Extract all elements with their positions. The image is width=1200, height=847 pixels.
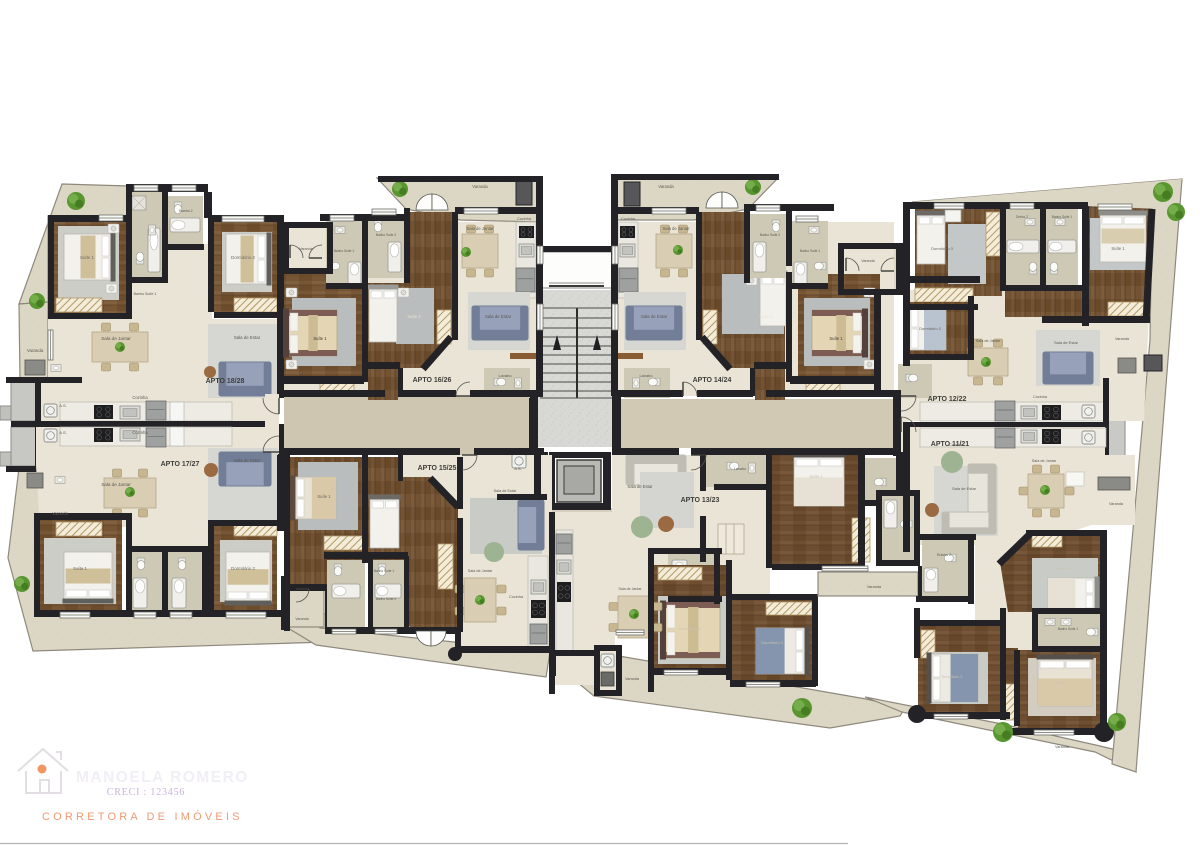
svg-text:APTO 15/25: APTO 15/25 [418,465,457,472]
svg-text:Varanda: Varanda [1109,502,1124,506]
svg-text:Sala de Jantar: Sala de Jantar [618,587,642,591]
svg-text:Zerbo 2: Zerbo 2 [1016,215,1028,219]
svg-text:Banho Suíte 2: Banho Suíte 2 [760,233,780,237]
svg-text:A.S.: A.S. [59,403,67,408]
svg-text:Sala de Jantar: Sala de Jantar [662,226,690,231]
svg-text:Banho 2: Banho 2 [179,209,192,213]
svg-text:Suíte 2: Suíte 2 [407,314,421,319]
svg-text:Varanda: Varanda [658,184,674,189]
svg-text:Varanda: Varanda [27,348,44,353]
svg-text:CORRETORA DE IMÓVEIS: CORRETORA DE IMÓVEIS [42,810,243,823]
svg-text:Suíte 1: Suíte 1 [1111,246,1125,251]
svg-text:Banho Suíte 1: Banho Suíte 1 [334,249,354,253]
svg-text:Sala de Estar: Sala de Estar [485,314,512,319]
svg-text:Varanda: Varanda [867,585,882,589]
svg-text:Suíte 1: Suíte 1 [829,336,843,341]
svg-text:Cozinha: Cozinha [621,217,636,221]
svg-text:Sala de Estar: Sala de Estar [952,486,977,491]
svg-text:APTO 17/27: APTO 17/27 [161,461,200,468]
svg-text:Varanda: Varanda [472,184,488,189]
svg-text:Banho Suíte 1: Banho Suíte 1 [1052,215,1072,219]
svg-text:Varanda: Varanda [625,677,640,681]
svg-text:Sala de Jantar: Sala de Jantar [101,482,131,487]
svg-text:Suíte 1: Suíte 1 [73,566,87,571]
svg-text:Sala de Jantar: Sala de Jantar [468,569,493,573]
svg-text:Varanda: Varanda [295,617,308,621]
svg-text:Varanda: Varanda [299,247,312,251]
svg-text:A.S.: A.S. [59,430,67,435]
svg-text:Sala de Estar: Sala de Estar [1054,340,1079,345]
svg-text:Dormitório 2: Dormitório 2 [679,626,702,631]
svg-text:Varanda: Varanda [861,259,874,263]
svg-text:APTO 12/22: APTO 12/22 [928,396,967,403]
svg-text:Banho Suíte 1: Banho Suíte 1 [374,569,394,573]
svg-text:Dormitório 2: Dormitório 2 [231,255,255,260]
svg-text:Cozinha: Cozinha [1033,395,1048,399]
svg-text:Sala de Estar: Sala de Estar [641,314,668,319]
svg-text:Lavabo: Lavabo [498,373,512,378]
svg-text:Cozinha: Cozinha [509,595,524,599]
svg-text:Cozinha: Cozinha [949,443,964,447]
svg-text:Lavabo: Lavabo [639,373,653,378]
svg-text:Banho Suíte 2: Banho Suíte 2 [376,597,396,601]
svg-text:APTO 13/23: APTO 13/23 [681,497,720,504]
svg-text:Ruisho 2: Ruisho 2 [937,553,951,557]
svg-text:APTO 16/26: APTO 16/26 [413,377,452,384]
svg-text:Suíte 1: Suíte 1 [313,336,327,341]
svg-text:Suíte 1: Suíte 1 [80,255,94,260]
svg-text:Suíte 1: Suíte 1 [1056,680,1069,685]
svg-text:Sala de Estar: Sala de Estar [234,335,261,340]
svg-text:Lavabo: Lavabo [734,467,746,471]
svg-text:Banho Suíte 2: Banho Suíte 2 [376,233,396,237]
svg-text:Suíte 2: Suíte 2 [759,314,773,319]
svg-text:Banho Suíte 1: Banho Suíte 1 [134,292,157,296]
svg-text:Dormitório 3: Dormitório 3 [761,640,784,645]
svg-text:Cozinha: Cozinha [517,217,532,221]
svg-text:MANOELA ROMERO: MANOELA ROMERO [76,769,249,786]
svg-text:A.S.: A.S. [514,467,521,471]
svg-text:Banho Suíte 1: Banho Suíte 1 [800,249,820,253]
svg-text:Suíte 1: Suíte 1 [317,494,331,499]
svg-text:CRECI : 123456: CRECI : 123456 [107,787,185,798]
svg-text:Dormitório 3: Dormitório 3 [931,246,954,251]
svg-text:Sala de Estar: Sala de Estar [494,489,518,493]
svg-text:Suíte 1: Suíte 1 [809,474,823,479]
svg-text:Cozinha: Cozinha [132,430,148,435]
svg-text:Dormitório 3: Dormitório 3 [942,675,963,679]
svg-text:Dormitório 2: Dormitório 2 [231,566,255,571]
svg-text:Sala de Jantar: Sala de Jantar [101,336,131,341]
svg-text:Sala de Estar: Sala de Estar [234,458,261,463]
svg-text:Sala de Jantar: Sala de Jantar [976,339,1001,343]
svg-text:Sala de Jantar: Sala de Jantar [1032,459,1057,463]
svg-text:Cozinha: Cozinha [132,395,148,400]
svg-text:APTO 14/24: APTO 14/24 [693,377,732,384]
svg-text:Varanda: Varanda [1055,745,1070,749]
svg-text:Sala de Jantar: Sala de Jantar [466,226,494,231]
svg-text:Sala de Estar: Sala de Estar [627,484,653,489]
svg-text:Varanda: Varanda [1115,337,1130,341]
svg-text:Dormitório 2: Dormitório 2 [1054,567,1075,571]
svg-text:APTO 18/28: APTO 18/28 [206,378,245,385]
svg-text:Dormitório 2: Dormitório 2 [919,326,942,331]
svg-text:Banho Suíte 1: Banho Suíte 1 [1058,627,1078,631]
svg-text:Varanda: Varanda [52,511,69,516]
